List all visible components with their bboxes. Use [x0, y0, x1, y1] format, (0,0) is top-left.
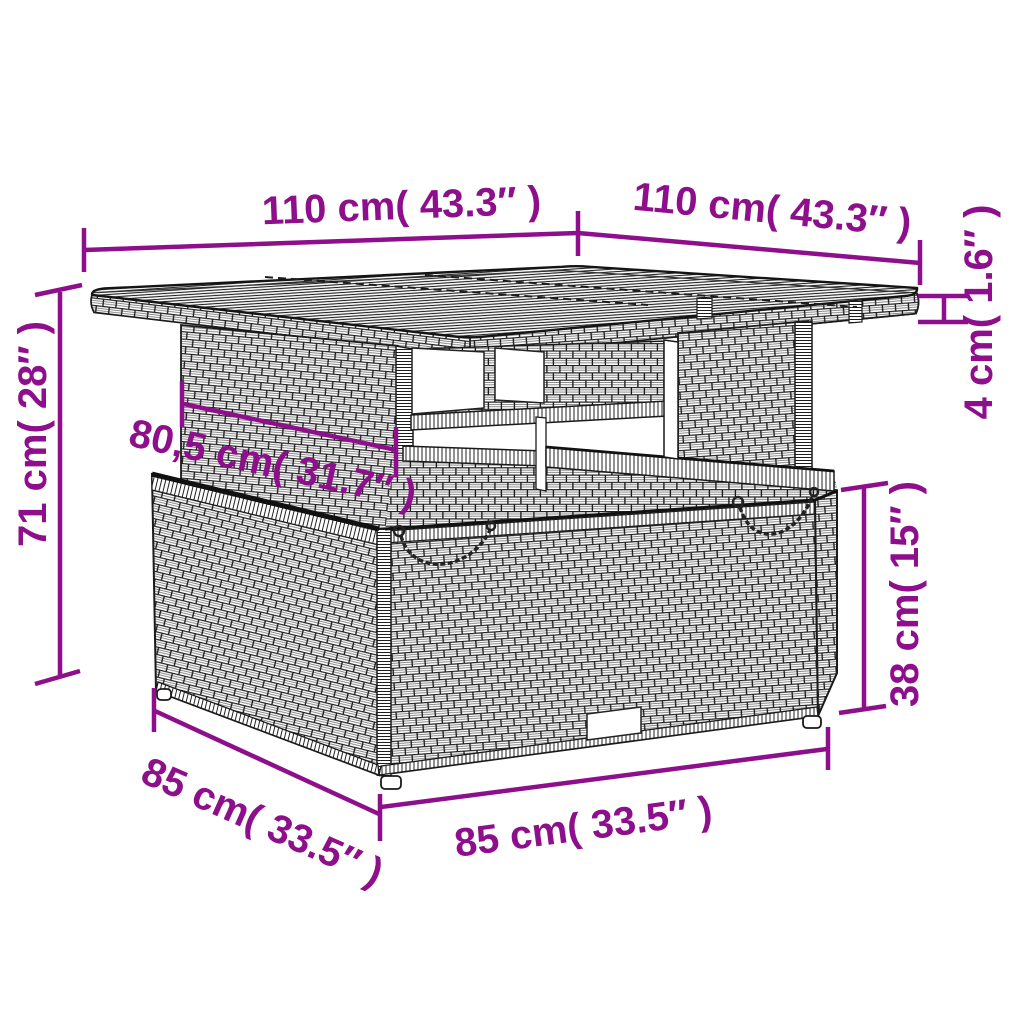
svg-text:71 cm( 28″ ): 71 cm( 28″ ) [11, 321, 55, 547]
svg-text:38 cm( 15″ ): 38 cm( 15″ ) [883, 481, 927, 707]
svg-text:4 cm( 1.6″ ): 4 cm( 1.6″ ) [957, 205, 1001, 420]
